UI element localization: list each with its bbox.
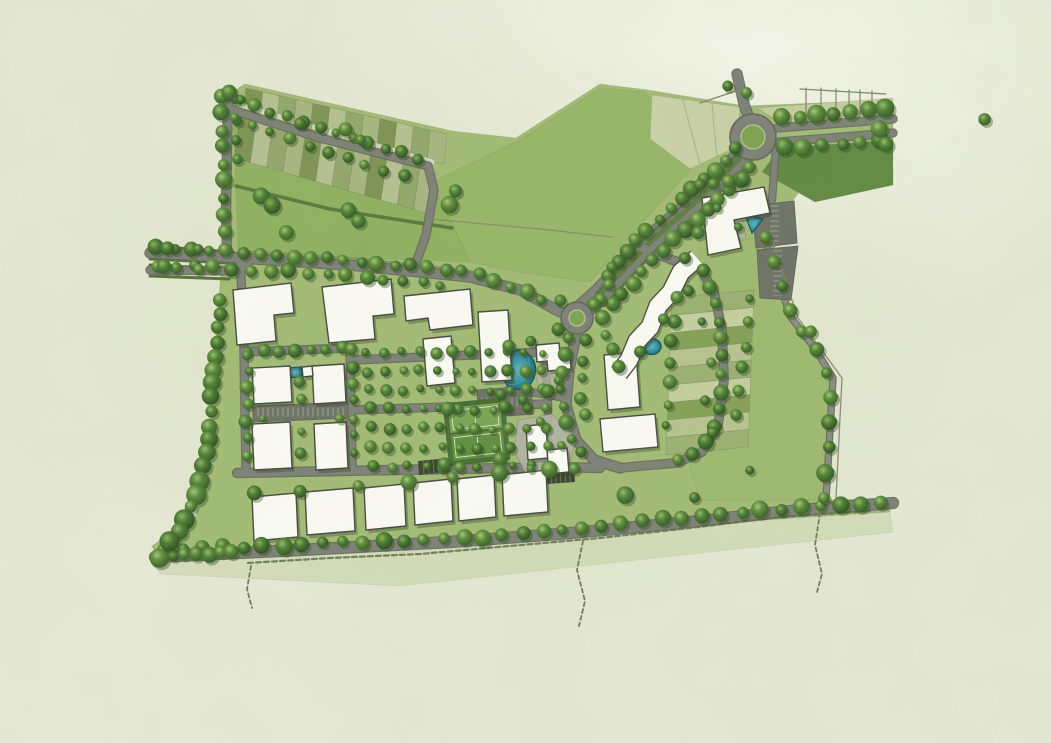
tree <box>211 320 224 333</box>
tree <box>402 405 411 414</box>
tree <box>579 408 591 420</box>
roundabout-northeast-island <box>741 125 765 149</box>
tree <box>420 260 433 273</box>
tree <box>558 415 574 431</box>
tree <box>486 388 494 396</box>
tree <box>554 376 563 385</box>
tree <box>556 524 567 535</box>
tree <box>815 138 828 151</box>
tree <box>355 536 369 550</box>
tree <box>456 529 472 545</box>
tree <box>435 385 443 393</box>
tree <box>455 423 464 432</box>
tree <box>419 405 426 412</box>
tree <box>294 485 307 498</box>
tree <box>469 406 479 416</box>
tree <box>491 444 499 452</box>
tree <box>783 303 797 317</box>
tree <box>683 285 694 296</box>
tree <box>430 347 442 359</box>
tree <box>816 464 834 482</box>
tree <box>706 357 716 367</box>
tree <box>366 421 377 432</box>
tree <box>218 159 229 170</box>
tree <box>403 258 417 272</box>
tree <box>438 457 452 471</box>
tree <box>337 255 347 265</box>
tree <box>232 154 242 164</box>
tree <box>264 108 275 119</box>
tree <box>716 348 729 361</box>
tree <box>357 257 368 268</box>
building-court-sw <box>252 422 292 470</box>
tree <box>282 110 293 121</box>
tree <box>231 135 241 145</box>
tree <box>697 263 711 277</box>
tree <box>554 295 566 307</box>
tree <box>826 107 840 121</box>
building-south-5 <box>457 475 496 521</box>
tree <box>346 361 360 375</box>
tree <box>536 365 546 375</box>
tree <box>809 342 824 357</box>
tree <box>379 348 389 358</box>
tree <box>502 340 515 353</box>
tree <box>745 294 753 302</box>
tree <box>361 348 369 356</box>
tree <box>567 434 577 444</box>
tree <box>736 171 749 184</box>
tree <box>874 496 888 510</box>
tree <box>293 376 305 388</box>
tree <box>315 122 327 134</box>
tree <box>720 155 731 166</box>
tree <box>807 105 826 124</box>
tree <box>537 524 551 538</box>
tree <box>658 314 669 325</box>
tree <box>692 226 705 239</box>
tree <box>484 365 496 377</box>
tree <box>734 223 743 232</box>
tree <box>773 108 790 125</box>
tree <box>715 369 726 380</box>
tree <box>805 325 817 337</box>
tree <box>464 345 476 357</box>
tree <box>823 441 836 454</box>
tree <box>360 270 375 285</box>
tree <box>355 135 365 145</box>
tree <box>741 342 752 353</box>
tree <box>364 401 376 413</box>
tree <box>304 251 318 265</box>
tree <box>474 530 491 547</box>
tree <box>450 385 462 397</box>
tree <box>294 118 306 130</box>
tree <box>698 317 706 325</box>
tree <box>675 192 689 206</box>
tree <box>702 279 717 294</box>
tree <box>242 350 252 360</box>
tree <box>694 508 709 523</box>
tree <box>577 373 587 383</box>
tree <box>362 367 373 378</box>
tree <box>397 534 411 548</box>
tree <box>320 345 330 355</box>
tree <box>317 537 328 548</box>
tree <box>495 528 508 541</box>
tree <box>395 145 408 158</box>
tree <box>541 461 558 478</box>
tree <box>279 225 294 240</box>
tree <box>674 511 689 526</box>
tree <box>384 423 396 435</box>
tree <box>694 179 706 191</box>
tree <box>743 316 753 326</box>
tree <box>349 414 359 424</box>
tree <box>793 138 811 156</box>
tree <box>707 427 718 438</box>
tree <box>821 367 832 378</box>
tree <box>399 366 408 375</box>
tree <box>382 442 394 454</box>
tree <box>628 233 641 246</box>
tree <box>452 368 459 375</box>
tree <box>606 342 619 355</box>
tree <box>349 395 359 405</box>
tree <box>434 422 444 432</box>
tree <box>440 402 455 417</box>
tree <box>543 441 553 451</box>
tree <box>302 268 314 280</box>
building-south-4 <box>413 479 453 525</box>
tree <box>663 375 677 389</box>
tree <box>455 444 464 453</box>
tree <box>474 267 486 279</box>
tree <box>612 360 625 373</box>
tree <box>238 415 252 429</box>
tree <box>339 122 353 136</box>
tree <box>243 433 253 443</box>
tree <box>350 430 358 438</box>
tree <box>505 282 515 292</box>
tree <box>821 414 837 430</box>
tree <box>606 261 617 272</box>
tree <box>178 548 190 560</box>
tree <box>216 125 229 138</box>
tree <box>713 330 727 344</box>
tree <box>239 380 253 394</box>
tree <box>498 400 511 413</box>
building-court-nw <box>252 366 292 404</box>
tree <box>520 284 536 300</box>
tree <box>351 214 365 228</box>
tree <box>387 463 397 473</box>
tree <box>401 424 411 434</box>
tree <box>397 276 408 287</box>
tree <box>376 532 393 549</box>
tree <box>775 138 793 156</box>
tree <box>603 279 614 290</box>
building-court-ne <box>312 364 346 404</box>
tree <box>368 256 384 272</box>
tree <box>518 394 528 404</box>
tree <box>295 447 307 459</box>
tree <box>346 377 359 390</box>
tree <box>159 531 179 551</box>
tree <box>860 101 877 118</box>
tree <box>775 504 787 516</box>
tree <box>221 85 236 100</box>
tree <box>978 113 990 125</box>
tree <box>685 447 699 461</box>
tree <box>383 402 395 414</box>
tree <box>400 442 411 453</box>
tree <box>559 402 569 412</box>
tree <box>626 276 642 292</box>
tree <box>398 386 408 396</box>
tree <box>243 399 254 410</box>
tree <box>655 510 671 526</box>
tree <box>416 384 424 392</box>
tree <box>741 87 752 98</box>
tree <box>729 141 742 154</box>
tree <box>402 460 411 469</box>
tree <box>378 166 389 177</box>
building-south-2 <box>305 488 355 535</box>
tree <box>837 138 849 150</box>
tree <box>265 127 274 136</box>
tree <box>793 498 810 515</box>
tree <box>237 247 250 260</box>
building-court-se <box>314 422 348 470</box>
tree <box>259 415 265 421</box>
tree <box>213 293 226 306</box>
tree <box>655 215 665 225</box>
tree <box>189 546 204 561</box>
tree <box>280 262 296 278</box>
tree <box>380 384 392 396</box>
tree <box>539 350 546 357</box>
tree <box>359 160 369 170</box>
tree <box>353 480 364 491</box>
tree <box>288 344 302 358</box>
tree <box>520 383 532 395</box>
tree <box>417 534 429 546</box>
tree <box>283 132 296 145</box>
tree <box>297 428 305 436</box>
tree <box>245 265 257 277</box>
tree <box>520 348 527 355</box>
tree <box>613 515 628 530</box>
tree <box>272 345 285 358</box>
tree <box>218 243 232 257</box>
tree <box>488 426 496 434</box>
tree <box>767 255 780 268</box>
tree <box>449 184 462 197</box>
tree <box>337 536 348 547</box>
tree <box>210 336 224 350</box>
tree <box>551 323 564 336</box>
tree <box>205 259 220 274</box>
tree <box>606 296 621 311</box>
tree <box>569 463 580 474</box>
tree <box>264 264 278 278</box>
tree <box>818 492 830 504</box>
roundabout-central-island <box>569 310 585 326</box>
tree <box>469 423 481 435</box>
tree <box>878 137 893 152</box>
tree <box>713 203 722 212</box>
tree <box>527 465 535 473</box>
tree <box>367 460 379 472</box>
tree <box>364 384 373 393</box>
tree <box>679 252 691 264</box>
tree <box>258 344 271 357</box>
tree <box>271 249 283 261</box>
tree <box>745 466 754 475</box>
building-court-hut <box>302 366 313 377</box>
tree <box>275 538 292 555</box>
tree <box>193 244 203 254</box>
tree <box>454 462 465 473</box>
tree <box>557 441 566 450</box>
tree <box>759 231 771 243</box>
tree <box>253 537 270 554</box>
tree <box>415 346 425 356</box>
tree <box>670 291 683 304</box>
tree <box>418 421 429 432</box>
tree <box>296 394 307 405</box>
tree <box>435 281 444 290</box>
tree <box>672 454 683 465</box>
tree <box>710 297 721 308</box>
tree <box>438 442 446 450</box>
tree <box>737 507 749 519</box>
tree <box>245 367 254 376</box>
tree <box>468 386 476 394</box>
tree <box>455 265 467 277</box>
tree <box>505 442 516 453</box>
tree <box>484 348 493 357</box>
tree <box>730 409 742 421</box>
tree <box>664 357 676 369</box>
tree <box>321 251 333 263</box>
tree <box>495 389 506 400</box>
tree <box>689 492 700 503</box>
tree <box>722 174 735 187</box>
tree <box>390 260 401 271</box>
building-south-3 <box>364 484 406 530</box>
tree <box>224 262 238 276</box>
tree <box>536 295 546 305</box>
tree <box>294 537 309 552</box>
tree <box>398 169 411 182</box>
tree <box>419 444 428 453</box>
tree <box>577 356 588 367</box>
tree <box>215 171 232 188</box>
tree <box>364 440 376 452</box>
tree <box>306 345 316 355</box>
tree <box>215 138 230 153</box>
tree <box>645 253 658 266</box>
tree <box>501 364 513 376</box>
tree <box>635 265 647 277</box>
tree <box>666 203 677 214</box>
tree <box>522 424 531 433</box>
tree <box>438 533 449 544</box>
tree <box>440 263 454 277</box>
tree <box>345 343 357 355</box>
tree <box>664 400 673 409</box>
tree <box>517 526 531 540</box>
tree <box>708 178 719 189</box>
tree <box>324 269 334 279</box>
tree <box>525 336 536 347</box>
building-southeast-2 <box>600 414 658 452</box>
tree <box>490 406 499 415</box>
tree <box>218 224 232 238</box>
tree <box>218 193 229 204</box>
tree <box>242 451 253 462</box>
tree <box>509 462 517 470</box>
tree <box>776 280 788 292</box>
tree <box>579 334 592 347</box>
tree <box>486 273 501 288</box>
tree <box>322 146 335 159</box>
tree <box>247 98 260 111</box>
tree <box>161 241 175 255</box>
tree <box>472 463 481 472</box>
tree <box>472 443 483 454</box>
tree <box>263 197 280 214</box>
tree <box>732 385 744 397</box>
tree <box>446 345 458 357</box>
tree <box>574 392 587 405</box>
tree <box>193 264 204 275</box>
tree <box>433 366 442 375</box>
tree <box>713 385 729 401</box>
tree <box>875 98 894 117</box>
tree <box>377 275 388 286</box>
tree <box>714 317 725 328</box>
road-ne-parking-link <box>772 146 776 200</box>
tree <box>823 390 838 405</box>
tree <box>657 244 671 258</box>
tree <box>412 154 424 166</box>
tree <box>713 403 725 415</box>
tree <box>713 507 728 522</box>
tree <box>413 364 423 374</box>
tree <box>722 81 733 92</box>
tree <box>541 384 555 398</box>
tree <box>254 248 266 260</box>
tree <box>216 207 231 222</box>
tree <box>230 113 239 122</box>
tree <box>503 423 515 435</box>
tree <box>397 347 405 355</box>
tree <box>520 365 532 377</box>
tree <box>335 414 345 424</box>
tree <box>350 448 359 457</box>
tree <box>338 267 352 281</box>
site-plan-page <box>0 0 1051 743</box>
tree <box>423 462 430 469</box>
tree <box>224 544 239 559</box>
tree <box>662 421 670 429</box>
tree <box>616 486 634 504</box>
tree <box>853 496 869 512</box>
tree <box>447 472 458 483</box>
